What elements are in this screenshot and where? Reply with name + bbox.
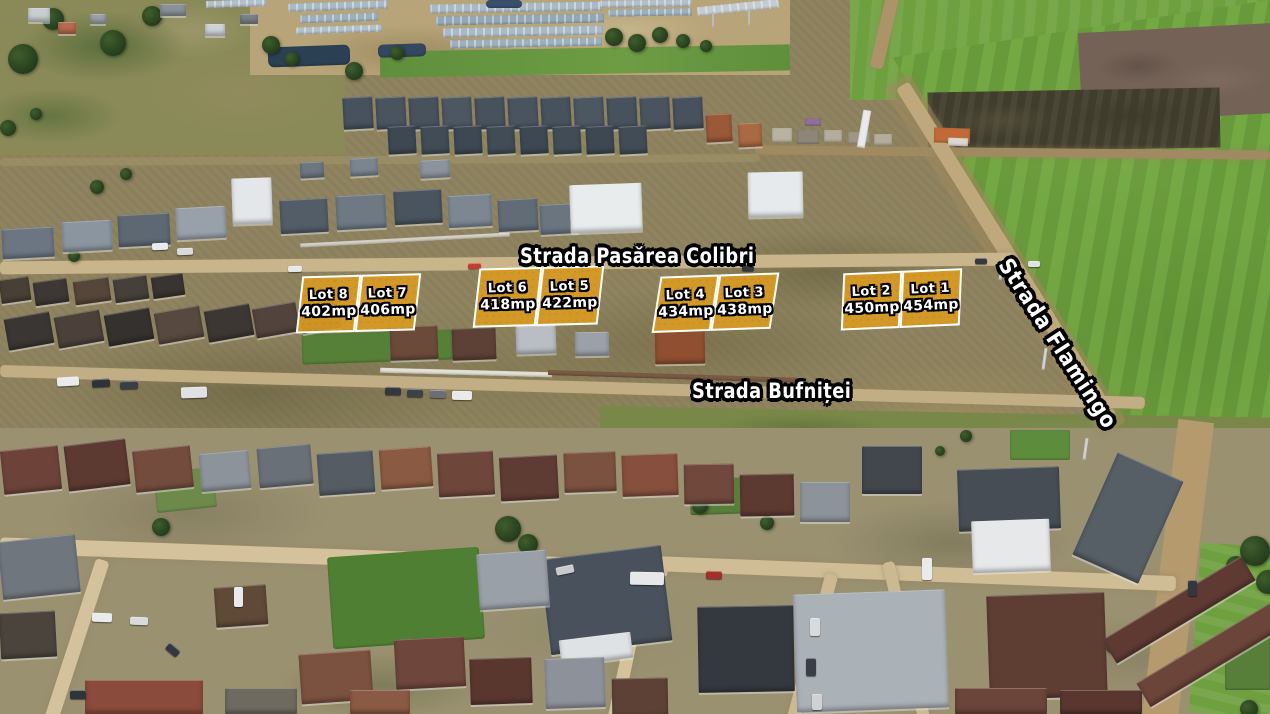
lot-overlay-lot-6: Lot 6418mp	[473, 267, 542, 328]
lot-name: Lot 3	[717, 285, 773, 303]
lot-overlay-lot-5: Lot 5422mp	[535, 265, 604, 326]
lot-area: 422mp	[542, 294, 598, 312]
lot-label: Lot 1454mp	[903, 281, 960, 316]
lot-area: 438mp	[717, 300, 773, 319]
lot-label: Lot 8402mp	[301, 287, 357, 321]
lot-overlay-lot-8: Lot 8402mp	[296, 275, 362, 334]
lot-overlay-lot-4: Lot 4434mp	[652, 275, 720, 333]
lot-area: 418mp	[480, 296, 536, 314]
lot-name: Lot 7	[360, 286, 416, 303]
lot-label: Lot 6418mp	[479, 280, 535, 314]
lot-name: Lot 5	[542, 279, 598, 296]
lot-overlay-lot-2: Lot 2450mp	[841, 271, 903, 331]
lot-area: 434mp	[658, 302, 714, 321]
lot-area: 450mp	[844, 299, 900, 318]
lot-area: 406mp	[360, 301, 416, 319]
aerial-photo: Lot 8402mpLot 7406mpLot 6418mpLot 5422mp…	[0, 0, 1270, 714]
lot-overlay-lot-1: Lot 1454mp	[900, 268, 962, 328]
street-label-pasarea-colibri: Strada Pasărea Colibri	[520, 244, 754, 268]
lot-label: Lot 2450mp	[843, 283, 900, 318]
lot-group-1: Lot 8402mpLot 7406mp	[296, 273, 410, 333]
lot-name: Lot 8	[301, 287, 357, 304]
lot-label: Lot 4434mp	[657, 287, 713, 321]
lot-group-4: Lot 2450mpLot 1454mp	[841, 268, 956, 330]
lot-group-2: Lot 6418mpLot 5422mp	[473, 265, 605, 327]
lot-group-3: Lot 4434mpLot 3438mp	[652, 273, 763, 333]
street-label-bufnitei: Strada Bufniței	[692, 379, 851, 403]
lot-overlay-lot-7: Lot 7406mp	[355, 273, 421, 332]
lot-name: Lot 6	[479, 280, 535, 297]
lot-area: 454mp	[903, 296, 959, 315]
lot-label: Lot 7406mp	[360, 286, 416, 320]
lot-label: Lot 5422mp	[542, 279, 598, 313]
lot-overlay-lot-3: Lot 3438mp	[711, 272, 779, 330]
lot-name: Lot 4	[657, 287, 713, 305]
lot-area: 402mp	[301, 303, 357, 321]
lot-label: Lot 3438mp	[717, 285, 773, 319]
